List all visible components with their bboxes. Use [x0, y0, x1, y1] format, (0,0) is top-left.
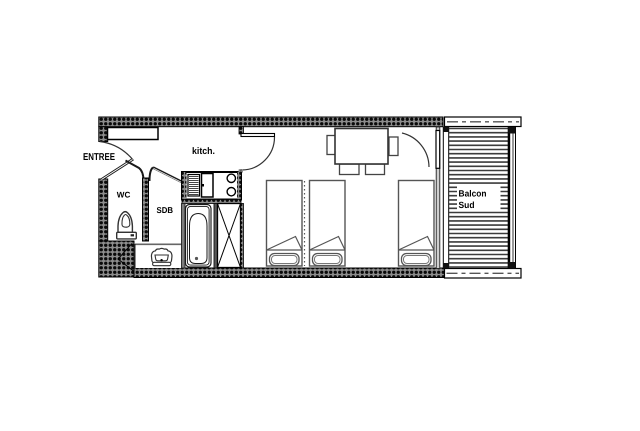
svg-text:kitch.: kitch. [192, 146, 215, 157]
svg-text:Balcon: Balcon [459, 189, 487, 199]
svg-text:ENTREE: ENTREE [83, 152, 115, 163]
svg-text:WC: WC [117, 190, 131, 199]
svg-text:Sud: Sud [459, 200, 475, 210]
svg-text:SDB: SDB [157, 205, 174, 215]
